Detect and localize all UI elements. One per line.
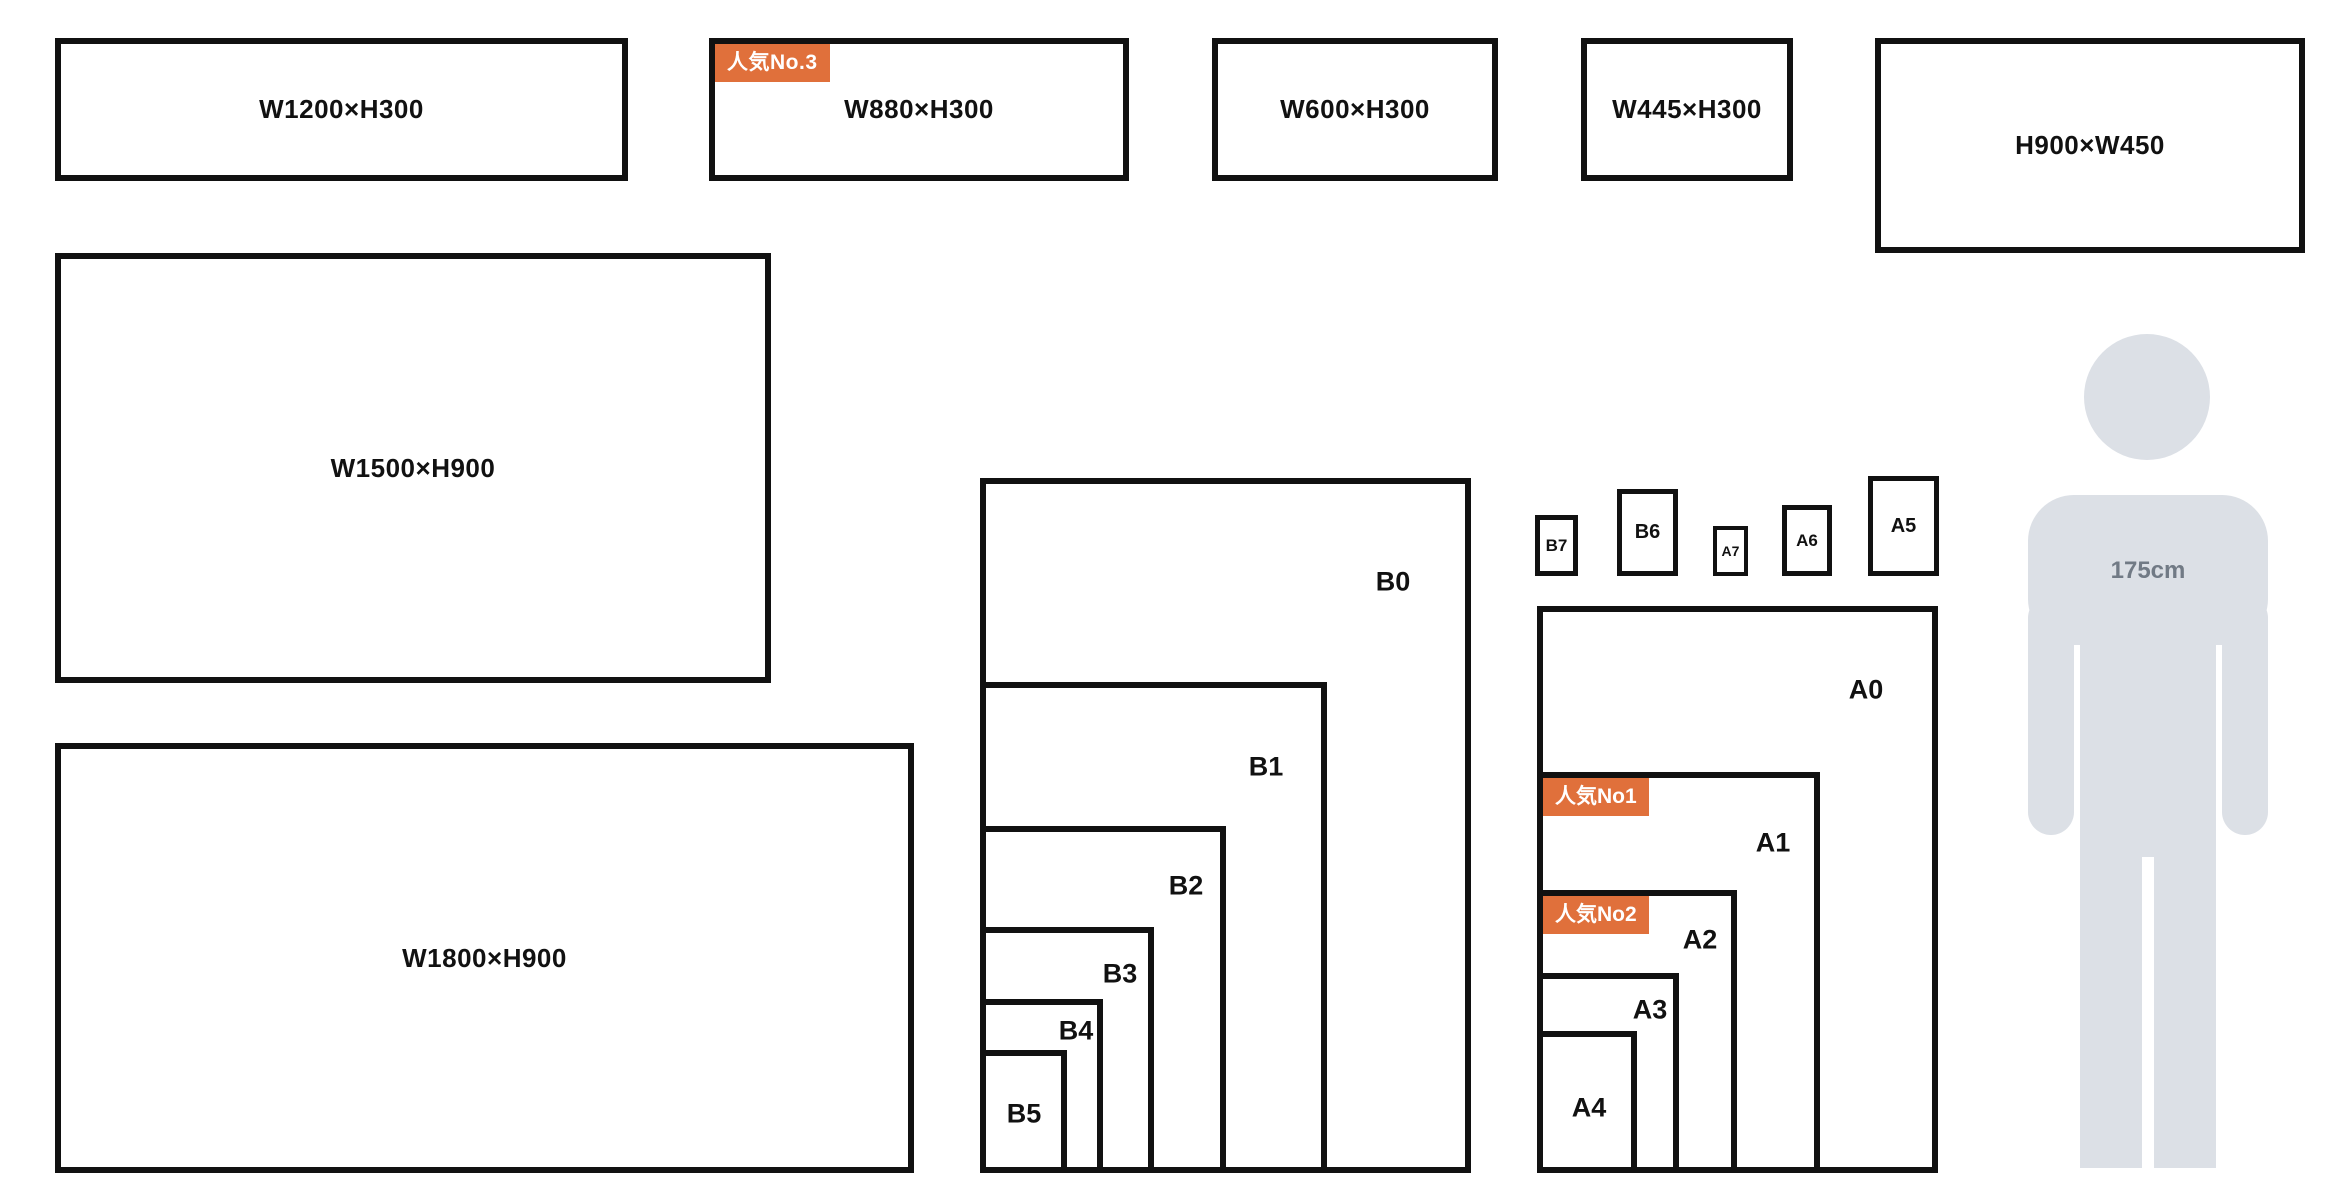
popularity-badge-no2: 人気No2: [1543, 896, 1649, 934]
paper-box-a5: A5: [1868, 476, 1939, 576]
paper-label-b4: B4: [1059, 1016, 1094, 1047]
paper-box-a7: A7: [1713, 526, 1748, 576]
banner-box-w1200xh300: W1200×H300: [55, 38, 628, 181]
paper-label-a6: A6: [1796, 531, 1818, 551]
paper-label-b0: B0: [1376, 567, 1411, 598]
paper-label-a4: A4: [1572, 1093, 1607, 1124]
banner-box-w445xh300: W445×H300: [1581, 38, 1793, 181]
paper-label-a0: A0: [1849, 675, 1884, 706]
paper-label-b2: B2: [1169, 871, 1204, 902]
banner-label: W1800×H900: [402, 943, 567, 974]
paper-label-b3: B3: [1103, 959, 1138, 990]
paper-box-a6: A6: [1782, 505, 1832, 576]
paper-box-b7: B7: [1535, 515, 1578, 576]
banner-box-w600xh300: W600×H300: [1212, 38, 1498, 181]
size-comparison-diagram: W1200×H300 人気No.3 W880×H300 W600×H300 W4…: [0, 0, 2342, 1204]
paper-box-b6: B6: [1617, 489, 1678, 576]
paper-label-b1: B1: [1249, 752, 1284, 783]
banner-box-w1800xh900: W1800×H900: [55, 743, 914, 1173]
paper-label-b5: B5: [1007, 1099, 1042, 1130]
paper-label-b7: B7: [1546, 536, 1568, 556]
paper-label-a2: A2: [1683, 925, 1718, 956]
paper-label-a3: A3: [1633, 995, 1668, 1026]
banner-label: H900×W450: [2015, 130, 2165, 161]
banner-box-h900xw450: H900×W450: [1875, 38, 2305, 253]
popularity-badge-no3: 人気No.3: [715, 44, 830, 82]
paper-label-a7: A7: [1722, 543, 1740, 559]
banner-label: W445×H300: [1612, 94, 1762, 125]
banner-label: W880×H300: [844, 94, 994, 125]
human-figure-silhouette: 175cm: [1990, 315, 2310, 1175]
banner-box-w880xh300: 人気No.3 W880×H300: [709, 38, 1129, 181]
banner-label: W1200×H300: [259, 94, 424, 125]
figure-head: [2084, 334, 2210, 460]
figure-height-label: 175cm: [2111, 557, 2186, 584]
figure-left-arm: [2028, 595, 2074, 835]
banner-label: W600×H300: [1280, 94, 1430, 125]
popularity-badge-no1: 人気No1: [1543, 778, 1649, 816]
figure-right-arm: [2222, 595, 2268, 835]
paper-label-a1: A1: [1756, 828, 1791, 859]
figure-leg-gap: [2142, 857, 2154, 1168]
paper-label-a5: A5: [1891, 515, 1917, 538]
banner-box-w1500xh900: W1500×H900: [55, 253, 771, 683]
banner-label: W1500×H900: [331, 453, 496, 484]
paper-label-b6: B6: [1635, 521, 1661, 544]
